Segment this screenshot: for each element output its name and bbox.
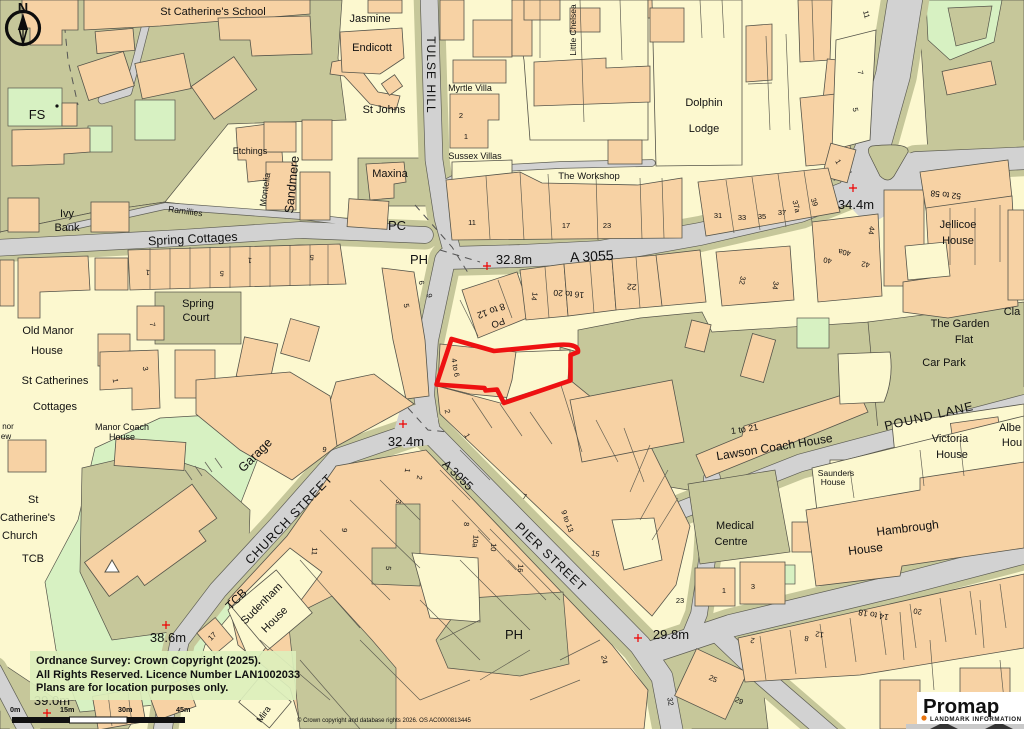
svg-text:5: 5 [219,269,224,278]
svg-text:Centre: Centre [714,536,747,548]
svg-text:TCB: TCB [22,553,44,565]
svg-text:nor: nor [2,422,14,431]
svg-text:37: 37 [778,208,786,217]
svg-text:15: 15 [591,548,601,558]
svg-text:Promap: Promap [923,695,999,718]
svg-text:Sussex Villas: Sussex Villas [448,151,502,161]
svg-text:LANDMARK INFORMATION: LANDMARK INFORMATION [930,716,1022,723]
svg-text:34: 34 [770,281,780,291]
svg-text:Bank: Bank [54,222,80,234]
svg-text:Car Park: Car Park [922,357,966,369]
svg-text:12: 12 [815,629,825,639]
svg-text:10a: 10a [470,535,480,549]
svg-text:15m: 15m [60,705,74,714]
svg-text:Albe: Albe [999,422,1021,434]
svg-text:11: 11 [310,547,320,556]
svg-text:Victoria: Victoria [932,433,969,445]
svg-text:© Crown copyright and database: © Crown copyright and database rights 20… [297,717,472,724]
svg-text:17: 17 [562,221,570,230]
svg-text:Little Chelsea: Little Chelsea [568,4,578,56]
svg-text:Cla: Cla [1004,306,1021,318]
svg-text:St Johns: St Johns [363,104,406,116]
svg-text:ew: ew [1,432,11,441]
svg-text:House: House [31,345,63,357]
svg-text:The Garden: The Garden [931,318,990,330]
svg-text:5: 5 [384,566,393,571]
svg-text:23: 23 [603,221,611,230]
svg-text:22: 22 [626,282,637,293]
svg-text:Ordnance Survey: Crown Copyrig: Ordnance Survey: Crown Copyright (2025). [36,655,261,667]
svg-text:33: 33 [738,213,746,222]
svg-text:10: 10 [489,543,499,552]
svg-text:45m: 45m [176,705,190,714]
svg-text:Lodge: Lodge [689,123,720,135]
svg-text:1: 1 [247,256,252,265]
svg-text:1: 1 [464,132,468,141]
svg-text:32: 32 [665,697,675,707]
svg-text:24: 24 [599,655,609,665]
svg-text:Jellicoe: Jellicoe [940,219,977,231]
svg-text:St Catherine's School: St Catherine's School [160,6,265,18]
svg-text:Myrtle Villa: Myrtle Villa [448,83,492,93]
svg-text:The Workshop: The Workshop [558,171,620,182]
svg-text:20: 20 [913,606,923,616]
svg-text:Cottages: Cottages [33,401,78,413]
svg-text:Ivy: Ivy [60,208,75,220]
svg-text:All Rights Reserved. Licence N: All Rights Reserved. Licence Number LAN1… [36,669,300,681]
svg-text:23: 23 [676,596,684,605]
svg-text:PH: PH [410,252,428,267]
svg-text:34.4m: 34.4m [838,197,874,212]
svg-text:Old Manor: Old Manor [22,325,74,337]
svg-text:0m: 0m [10,705,20,714]
svg-text:St Catherines: St Catherines [22,375,89,387]
svg-text:8: 8 [462,522,471,527]
svg-text:FS: FS [29,107,46,122]
svg-text:2: 2 [459,111,463,120]
svg-text:Endicott: Endicott [352,42,392,54]
svg-text:32.8m: 32.8m [496,252,532,267]
svg-text:House: House [821,477,846,487]
svg-text:38.6m: 38.6m [150,630,186,645]
svg-text:House: House [109,432,135,442]
svg-text:Hou: Hou [1002,437,1022,449]
svg-text:32.4m: 32.4m [388,434,424,449]
svg-text:Etchings: Etchings [233,146,268,156]
svg-text:Dolphin: Dolphin [685,97,722,109]
svg-text:30m: 30m [118,705,132,714]
svg-text:TULSE HILL: TULSE HILL [424,36,438,113]
svg-text:House: House [942,235,974,247]
svg-text:5: 5 [309,253,314,262]
svg-text:Jasmine: Jasmine [350,13,391,25]
svg-text:A 3055: A 3055 [570,247,615,265]
svg-text:Church: Church [2,530,37,542]
svg-text:40: 40 [823,255,833,265]
svg-text:11: 11 [468,218,476,227]
svg-text:PC: PC [388,218,406,233]
svg-text:44: 44 [866,226,876,236]
svg-text:PH: PH [505,627,523,642]
svg-text:3: 3 [751,582,755,591]
svg-text:St: St [28,494,38,506]
svg-text:Medical: Medical [716,520,754,532]
svg-text:Maxina: Maxina [372,168,408,180]
svg-text:1: 1 [722,586,726,595]
svg-text:Flat: Flat [955,334,973,346]
svg-text:Court: Court [183,312,210,324]
svg-text:29.8m: 29.8m [653,627,689,642]
svg-text:31: 31 [714,211,722,220]
svg-text:Catherine's: Catherine's [0,512,56,524]
svg-text:42: 42 [861,259,871,269]
svg-text:1: 1 [145,268,150,277]
svg-text:14: 14 [529,292,539,302]
svg-text:9: 9 [340,528,349,533]
svg-text:35: 35 [758,212,766,221]
svg-text:Manor Coach: Manor Coach [95,422,149,432]
svg-text:16: 16 [516,564,526,573]
svg-text:Plans are for location purpose: Plans are for location purposes only. [36,682,228,694]
svg-text:Spring: Spring [182,298,214,310]
svg-text:32: 32 [737,276,747,286]
svg-text:House: House [936,449,968,461]
